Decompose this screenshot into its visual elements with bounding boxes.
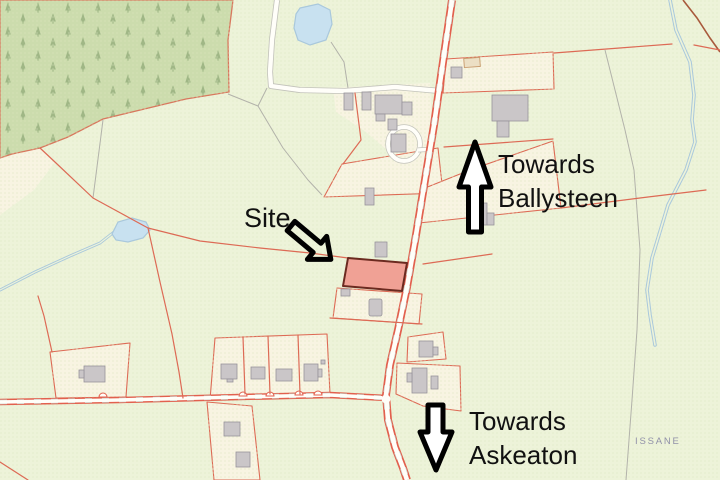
site-label: Site xyxy=(244,201,291,235)
askeaton-line2: Askeaton xyxy=(469,438,577,472)
towards-ballysteen-label: Towards Ballysteen xyxy=(498,147,618,215)
site-label-text: Site xyxy=(244,203,291,233)
askeaton-line1: Towards xyxy=(469,404,577,438)
map-canvas xyxy=(0,0,720,480)
ground-texture xyxy=(0,0,720,480)
pond xyxy=(294,4,332,45)
site-location-map: Site Towards Ballysteen Towards Askeaton… xyxy=(0,0,720,480)
towards-askeaton-label: Towards Askeaton xyxy=(469,404,577,472)
ballysteen-line2: Ballysteen xyxy=(498,181,618,215)
outbuilding xyxy=(464,57,481,67)
townland-label-text: ISSANE xyxy=(635,436,681,447)
townland-label: ISSANE xyxy=(635,436,681,448)
ballysteen-line1: Towards xyxy=(498,147,618,181)
site-plot xyxy=(343,258,407,291)
